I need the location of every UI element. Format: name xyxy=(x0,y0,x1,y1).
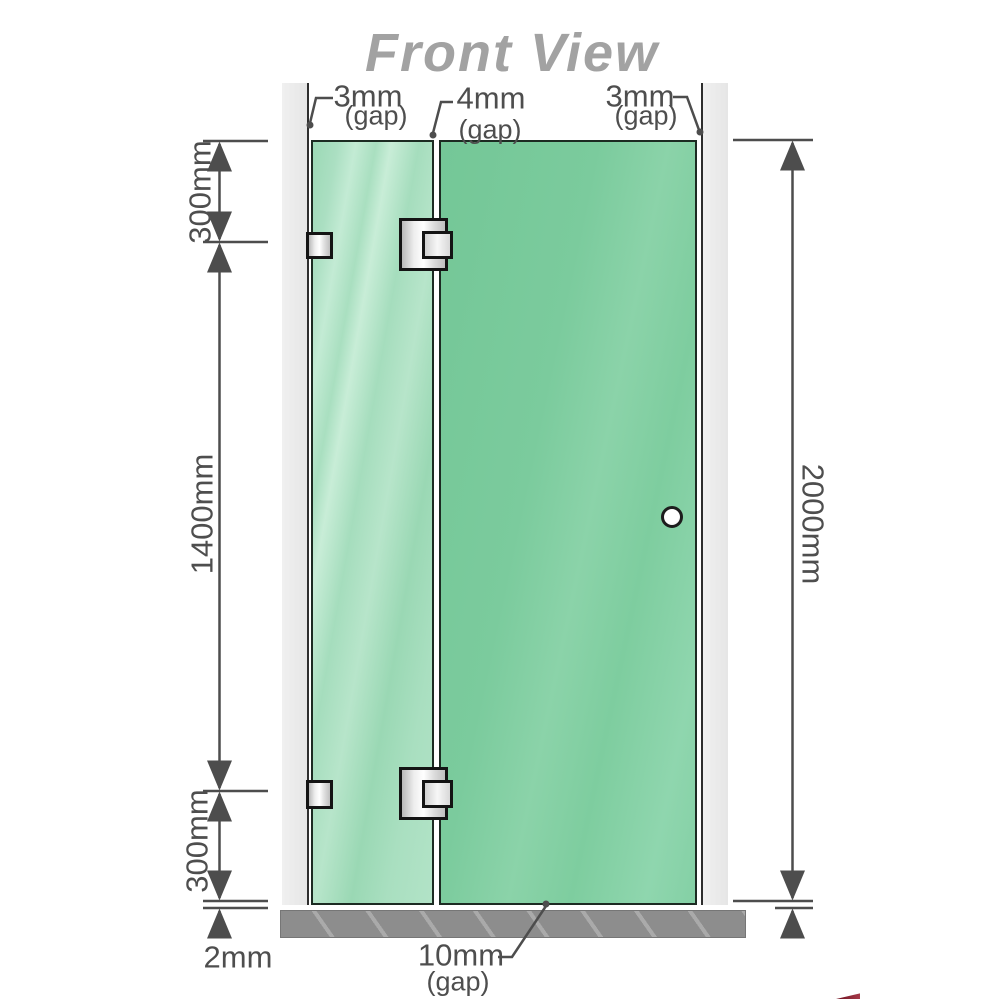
gap-top-left-note: (gap) xyxy=(344,103,407,130)
leader-gap-top-middle xyxy=(433,102,453,133)
logo-fragment xyxy=(836,991,860,999)
gap-top-middle-value: 4mm xyxy=(457,83,526,114)
leader-gap-top-left xyxy=(310,98,333,123)
door-glass-panel xyxy=(439,140,697,905)
dim-label-300-bottom: 300mm xyxy=(182,789,213,892)
wall-bracket-bottom xyxy=(306,780,333,809)
hinge-top-clamp xyxy=(422,231,453,259)
right-wall xyxy=(701,83,728,905)
door-handle-knob xyxy=(661,506,683,528)
dim-label-2000: 2000mm xyxy=(798,464,829,585)
gap-bottom-note: (gap) xyxy=(426,969,489,996)
gap-top-middle-note: (gap) xyxy=(458,117,521,144)
left-wall xyxy=(282,83,309,905)
gap-top-right-note: (gap) xyxy=(614,103,677,130)
dim-label-300-top: 300mm xyxy=(185,140,216,243)
hinge-bottom-clamp xyxy=(422,780,453,808)
front-view-diagram: Front View xyxy=(0,0,1000,1000)
diagram-title: Front View xyxy=(365,22,659,84)
dim-label-1400: 1400mm xyxy=(187,454,218,575)
wall-bracket-top xyxy=(306,232,333,259)
leader-dot-top-middle xyxy=(430,132,437,139)
floor-clearance-label: 2mm xyxy=(204,942,273,973)
floor-base xyxy=(280,910,746,938)
